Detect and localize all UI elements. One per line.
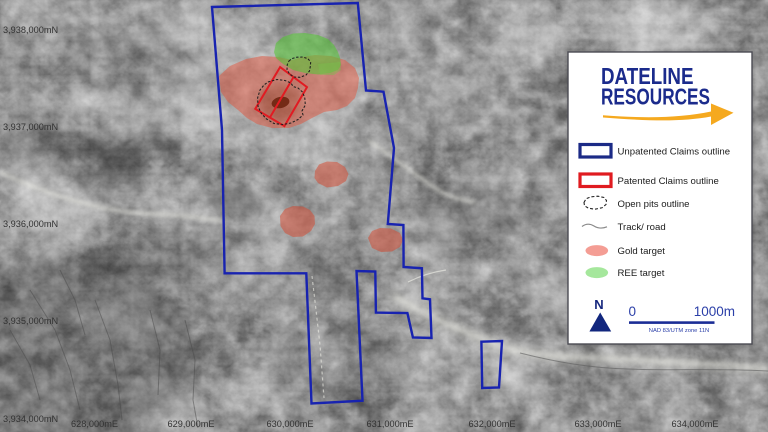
svg-text:634,000mE: 634,000mE <box>672 419 719 429</box>
svg-text:REE target: REE target <box>618 268 665 279</box>
svg-text:630,000mE: 630,000mE <box>267 419 314 429</box>
svg-text:632,000mE: 632,000mE <box>469 419 516 429</box>
svg-text:3,935,000mN: 3,935,000mN <box>3 316 58 326</box>
svg-text:Patented Claims outline: Patented Claims outline <box>618 176 719 187</box>
svg-text:629,000mE: 629,000mE <box>168 419 215 429</box>
svg-text:N: N <box>594 297 603 312</box>
svg-text:Track/ road: Track/ road <box>618 222 666 233</box>
svg-text:NAD 83/UTM zone 11N: NAD 83/UTM zone 11N <box>649 328 709 334</box>
svg-text:3,937,000mN: 3,937,000mN <box>3 122 58 132</box>
svg-text:3,938,000mN: 3,938,000mN <box>3 25 58 35</box>
svg-text:3,936,000mN: 3,936,000mN <box>3 219 58 229</box>
svg-text:631,000mE: 631,000mE <box>367 419 414 429</box>
svg-text:628,000mE: 628,000mE <box>71 419 118 429</box>
svg-text:1000m: 1000m <box>694 304 735 319</box>
svg-text:RESOURCES: RESOURCES <box>601 84 710 110</box>
svg-text:Gold target: Gold target <box>618 246 666 257</box>
svg-text:633,000mE: 633,000mE <box>575 419 622 429</box>
svg-text:0: 0 <box>629 304 637 319</box>
svg-text:3,934,000mN: 3,934,000mN <box>3 414 58 424</box>
svg-text:Open pits outline: Open pits outline <box>618 199 690 210</box>
svg-text:Unpatented Claims outline: Unpatented Claims outline <box>618 147 731 158</box>
